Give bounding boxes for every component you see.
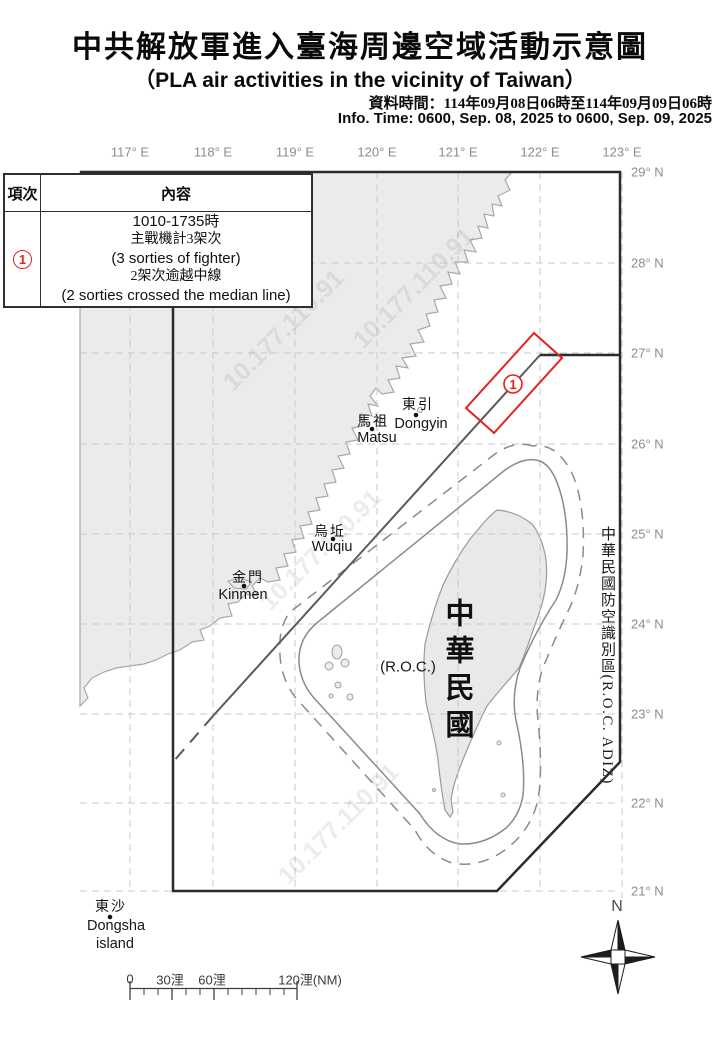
place-label-en: Dongsha: [87, 918, 145, 934]
scale-bar-label: 30浬: [156, 970, 183, 989]
place-label-zh: 東沙: [95, 896, 127, 916]
place-label-zh: 金門: [232, 567, 264, 587]
sortie-description-line: (2 sorties crossed the median line): [61, 287, 290, 305]
longitude-label: 118° E: [194, 145, 232, 160]
place-label-en: Dongyin: [394, 416, 447, 432]
pla-activity-map-page: { "title": { "zh": "中共解放軍進入臺海周邊空域活動示意圖",…: [0, 0, 720, 1040]
longitude-label: 119° E: [276, 145, 314, 160]
latitude-label: 25° N: [631, 527, 664, 542]
latitude-label: 21° N: [631, 884, 664, 899]
longitude-label: 120° E: [357, 145, 396, 160]
sortie-description-line: 1010-1735時: [61, 213, 290, 231]
compass-north-label: N: [611, 898, 623, 916]
latitude-label: 23° N: [631, 707, 664, 722]
scale-bar-label: 60浬: [198, 970, 225, 989]
longitude-label: 117° E: [111, 145, 149, 160]
table-header-content: 內容: [41, 175, 311, 211]
latitude-label: 27° N: [631, 346, 664, 361]
sortie-description: 1010-1735時主戰機計3架次(3 sorties of fighter)2…: [61, 213, 290, 305]
place-label-zh: 馬祖: [357, 411, 389, 431]
latitude-label: 26° N: [631, 437, 664, 452]
scale-bar-label: 0: [126, 972, 133, 987]
sortie-table-row: 1 1010-1735時主戰機計3架次(3 sorties of fighter…: [5, 212, 311, 306]
sortie-description-line: (3 sorties of fighter): [61, 250, 290, 268]
watermark-text: 10.177.110.91: [348, 222, 481, 355]
place-label-en: Matsu: [357, 430, 397, 446]
adiz-side-label: 中華民國防空識別區(R.O.C. ADIZ): [597, 526, 618, 785]
longitude-label: 122° E: [520, 145, 559, 160]
row-content-cell: 1010-1735時主戰機計3架次(3 sorties of fighter)2…: [41, 212, 311, 306]
watermark-text: 10.177.110.91: [273, 758, 406, 891]
map-labels-layer: 117° E118° E119° E120° E121° E122° E123°…: [0, 0, 720, 1040]
latitude-label: 24° N: [631, 617, 664, 632]
row-index-cell: 1: [5, 212, 41, 306]
latitude-label: 28° N: [631, 256, 664, 271]
table-header-index: 項次: [5, 175, 41, 211]
sortie-description-line: 2架次逾越中線: [61, 268, 290, 286]
sortie-table: 項次 內容 1 1010-1735時主戰機計3架次(3 sorties of f…: [3, 173, 313, 308]
longitude-label: 123° E: [602, 145, 641, 160]
place-label-en: Kinmen: [218, 587, 267, 603]
latitude-label: 29° N: [631, 165, 664, 180]
longitude-label: 121° E: [438, 145, 477, 160]
place-label-en: Wuqiu: [312, 539, 353, 555]
place-label-en: island: [96, 936, 134, 952]
sortie-description-line: 主戰機計3架次: [61, 231, 290, 249]
scale-bar-label: 120浬(NM): [278, 970, 342, 989]
taiwan-roc-sub-label: (R.O.C.): [380, 659, 436, 676]
place-label-zh: 東引: [402, 394, 434, 414]
latitude-label: 22° N: [631, 796, 664, 811]
sortie-table-header: 項次 內容: [5, 175, 311, 212]
place-label-zh: 烏坵: [314, 521, 346, 541]
taiwan-roc-label: 中華民國: [436, 598, 478, 746]
circled-1-badge: 1: [13, 250, 32, 269]
